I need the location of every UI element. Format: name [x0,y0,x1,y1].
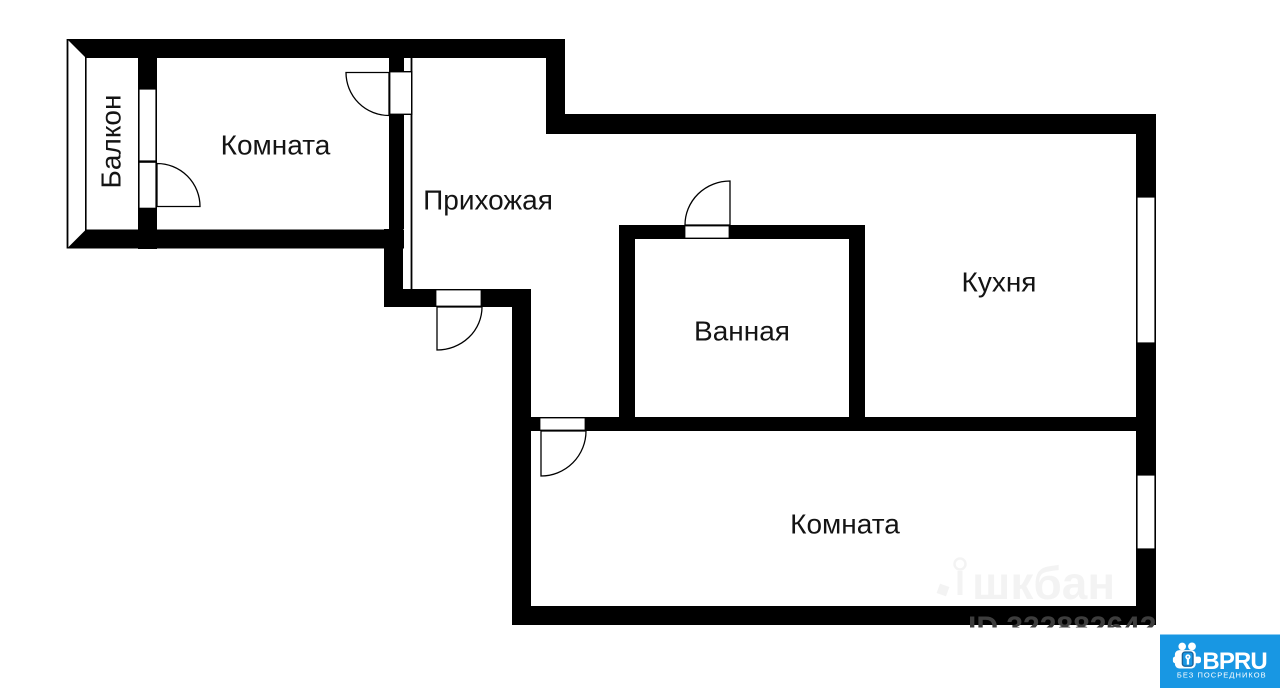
svg-text:Комната: Комната [221,130,331,161]
svg-text:Балкон: Балкон [96,95,127,189]
svg-text:Кухня: Кухня [962,266,1037,297]
svg-text:Ванная: Ванная [694,316,790,347]
svg-text:шкбан: шкбан [972,557,1115,609]
svg-text:БЕЗ ПОСРЕДНИКОВ: БЕЗ ПОСРЕДНИКОВ [1177,671,1267,680]
svg-text:Комната: Комната [790,509,900,540]
svg-text:Прихожая: Прихожая [423,185,553,216]
